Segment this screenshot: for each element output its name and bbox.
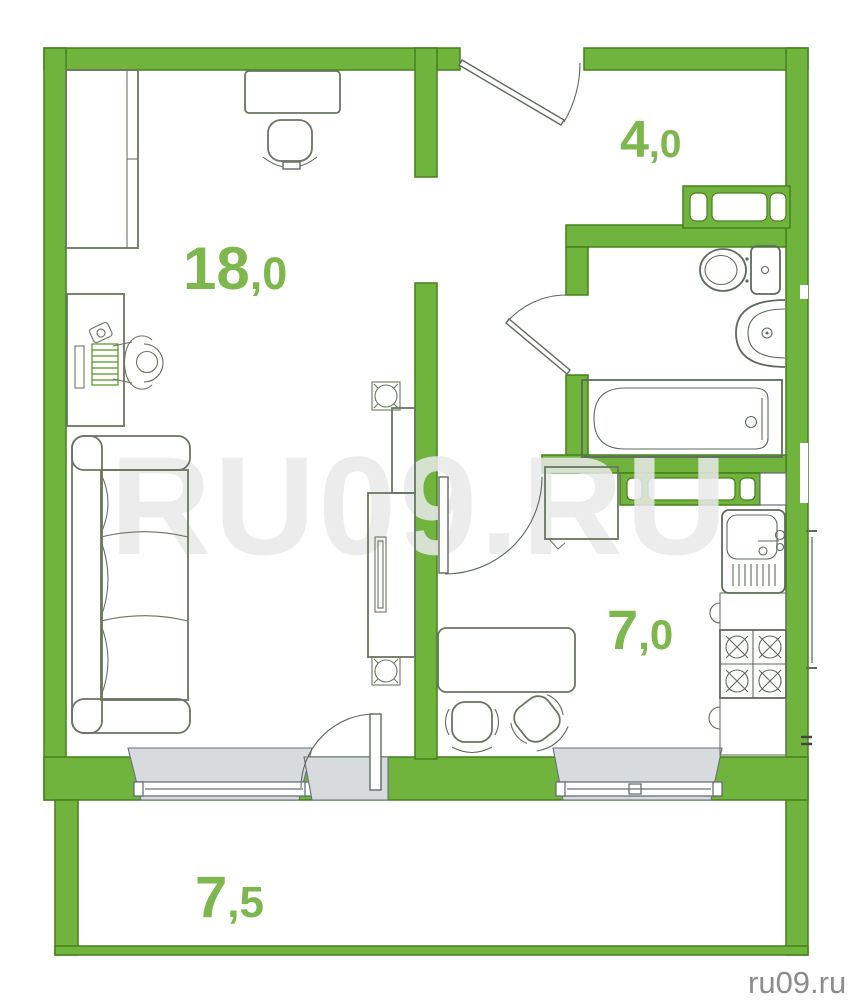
cup-icon <box>89 322 113 344</box>
wall-top-left <box>44 48 460 70</box>
speaker-icon <box>372 382 400 410</box>
monitor-icon <box>75 346 84 388</box>
stove-icon <box>720 630 786 698</box>
burner-icon <box>726 636 748 658</box>
toilet-icon <box>700 246 780 294</box>
chair-back <box>144 344 163 382</box>
burner-icon <box>726 670 748 692</box>
kitchen-window <box>553 748 722 800</box>
doors <box>301 60 580 790</box>
kitchen-sink-icon <box>722 510 785 593</box>
wall-left <box>44 48 66 800</box>
room-label-living: 18,0 <box>183 235 287 302</box>
room-label-balcony: 7,5 <box>195 865 264 930</box>
speaker-icon <box>372 657 400 685</box>
person-head <box>137 352 158 373</box>
wall-bathroom-left-upper <box>566 247 588 295</box>
wall-niche <box>800 285 808 299</box>
dining-table <box>438 628 575 692</box>
wash-basin-icon <box>736 300 785 367</box>
floor-plan-svg: RU09.RU <box>0 0 856 1006</box>
entrance-door <box>459 60 580 125</box>
burner-icon <box>759 670 781 692</box>
room-label-hallway: 4,0 <box>620 111 681 169</box>
hallway-closet <box>683 186 790 228</box>
wall-top-right <box>584 48 808 70</box>
site-credit: ru09.ru <box>748 965 846 1000</box>
stool <box>263 120 317 169</box>
wall-living-hall-upper <box>415 48 437 177</box>
burner-icon <box>759 636 781 658</box>
wall-balcony-left <box>55 800 78 955</box>
living-room-furniture <box>66 70 415 733</box>
bathroom-fixtures <box>582 246 785 457</box>
bathroom-door <box>506 295 570 374</box>
living-room-window <box>128 748 314 800</box>
room-label-kitchen: 7,0 <box>607 598 673 661</box>
wall-niche <box>800 443 808 503</box>
desk <box>67 294 124 426</box>
chair <box>446 702 499 753</box>
floor-plan: RU09.RU <box>0 0 856 1006</box>
watermark-text: RU09.RU <box>110 427 730 584</box>
person-at-desk-icon <box>113 336 163 389</box>
wall-balcony-bottom <box>55 946 808 955</box>
wardrobe <box>66 70 138 248</box>
dressing-table <box>245 71 340 113</box>
draining-board <box>733 564 775 586</box>
